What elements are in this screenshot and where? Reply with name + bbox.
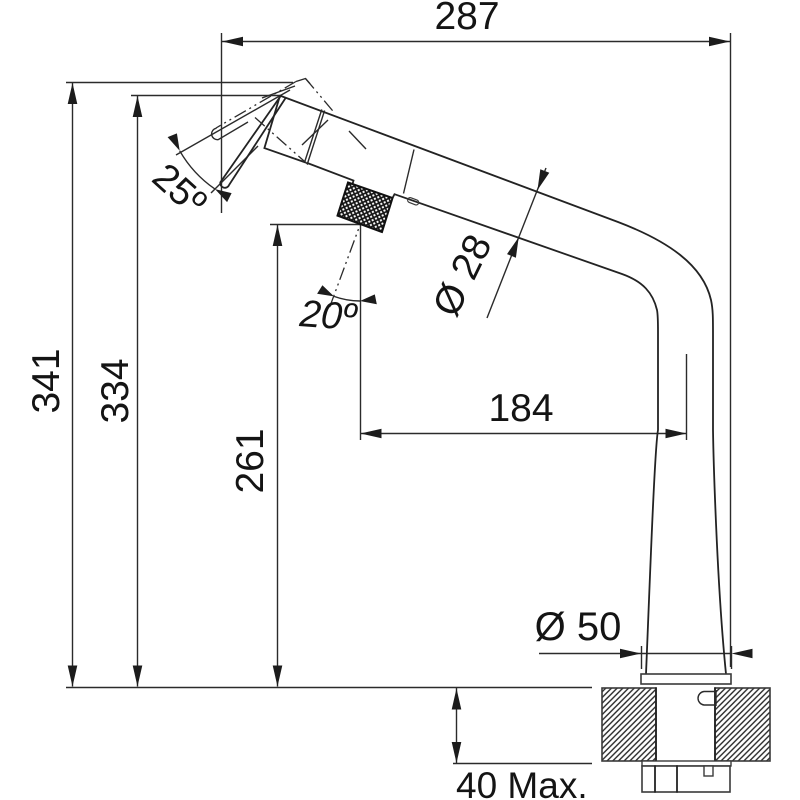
svg-text:25º: 25º — [144, 156, 214, 225]
svg-text:341: 341 — [25, 348, 68, 413]
svg-text:Ø 28: Ø 28 — [425, 228, 501, 323]
svg-text:334: 334 — [94, 358, 137, 423]
svg-text:20º: 20º — [297, 293, 359, 339]
svg-text:184: 184 — [488, 387, 553, 430]
svg-text:40 Max.: 40 Max. — [456, 765, 588, 800]
svg-text:Ø 50: Ø 50 — [535, 605, 622, 649]
svg-text:261: 261 — [229, 428, 272, 493]
svg-text:287: 287 — [434, 0, 499, 38]
